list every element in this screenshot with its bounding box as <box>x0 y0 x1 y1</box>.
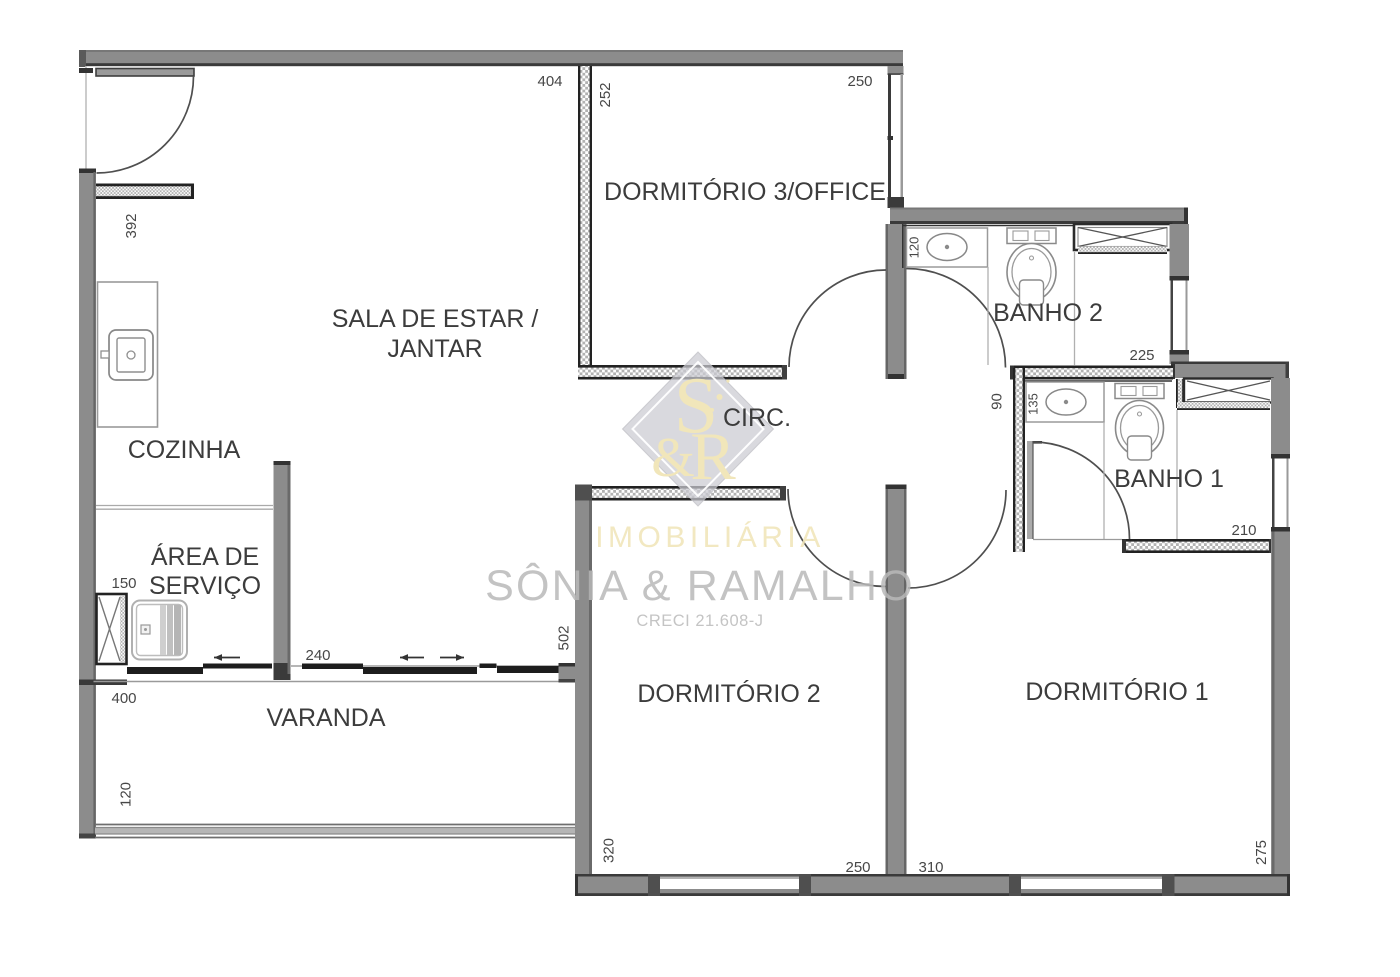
svg-text:90: 90 <box>989 393 1006 410</box>
svg-text:IMOBILIÁRIA: IMOBILIÁRIA <box>595 521 825 554</box>
svg-text:400: 400 <box>111 690 136 707</box>
svg-text:120: 120 <box>907 237 922 259</box>
svg-text:SALA DE ESTAR /: SALA DE ESTAR / <box>332 305 539 333</box>
svg-text:135: 135 <box>1026 393 1041 415</box>
svg-text:DORMITÓRIO 1: DORMITÓRIO 1 <box>1025 677 1208 706</box>
svg-text:275: 275 <box>1253 840 1270 865</box>
svg-text:502: 502 <box>556 625 573 650</box>
svg-text:210: 210 <box>1231 522 1256 539</box>
svg-text:252: 252 <box>597 82 614 107</box>
svg-text:SÔNIA & RAMALHO: SÔNIA & RAMALHO <box>485 562 915 610</box>
svg-text:JANTAR: JANTAR <box>387 335 482 363</box>
svg-text:BANHO 2: BANHO 2 <box>993 299 1103 327</box>
svg-text:ÁREA DE: ÁREA DE <box>151 542 259 571</box>
svg-text:240: 240 <box>305 647 330 664</box>
svg-text:CRECI 21.608-J: CRECI 21.608-J <box>636 612 763 630</box>
svg-text:COZINHA: COZINHA <box>128 436 241 464</box>
svg-text:404: 404 <box>537 73 562 90</box>
svg-text:SERVIÇO: SERVIÇO <box>149 572 261 600</box>
svg-text:310: 310 <box>918 859 943 876</box>
svg-text:225: 225 <box>1129 347 1154 364</box>
svg-text:VARANDA: VARANDA <box>266 704 385 732</box>
svg-text:DORMITÓRIO 3/OFFICE: DORMITÓRIO 3/OFFICE <box>604 177 886 206</box>
svg-text:250: 250 <box>845 859 870 876</box>
svg-text:&: & <box>651 427 695 489</box>
svg-text:BANHO 1: BANHO 1 <box>1114 465 1224 493</box>
svg-text:150: 150 <box>111 575 136 592</box>
svg-text:DORMITÓRIO 2: DORMITÓRIO 2 <box>637 679 820 708</box>
svg-text:392: 392 <box>123 213 140 238</box>
svg-text:120: 120 <box>118 782 135 807</box>
svg-text:CIRC.: CIRC. <box>723 404 791 432</box>
svg-text:250: 250 <box>847 73 872 90</box>
svg-text:320: 320 <box>601 838 618 863</box>
